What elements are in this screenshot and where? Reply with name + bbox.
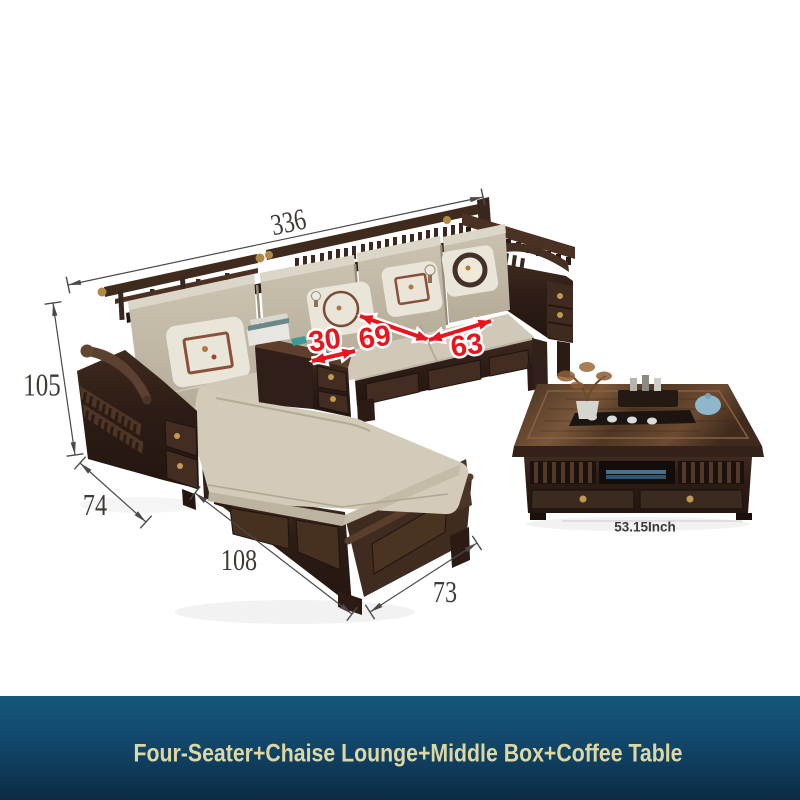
svg-text:73: 73 [433, 575, 457, 610]
svg-text:Four-Seater+Chaise Lounge+Midd: Four-Seater+Chaise Lounge+Middle Box+Cof… [134, 740, 683, 768]
svg-text:336: 336 [268, 202, 309, 242]
svg-text:30: 30 [307, 323, 343, 359]
svg-text:105: 105 [23, 367, 60, 403]
svg-text:74: 74 [83, 488, 107, 523]
svg-text:108: 108 [221, 543, 257, 578]
svg-text:53.15Inch: 53.15Inch [614, 520, 676, 535]
svg-text:63: 63 [449, 328, 485, 364]
svg-text:69: 69 [357, 320, 393, 356]
